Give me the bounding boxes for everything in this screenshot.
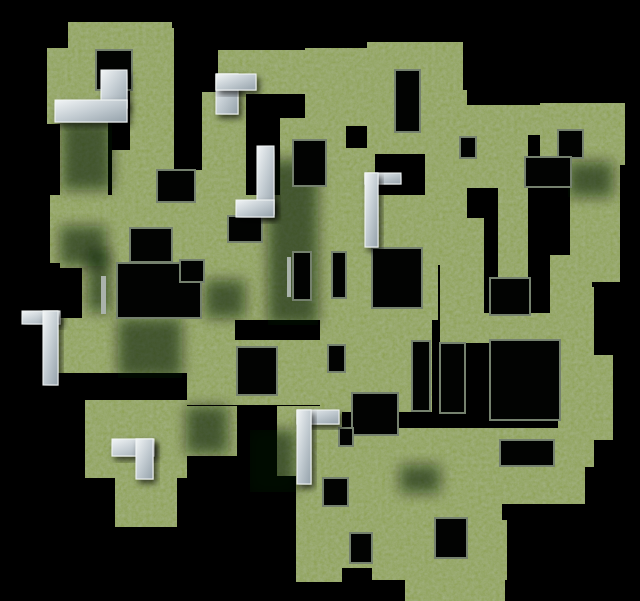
corridor-hole <box>352 393 398 435</box>
wall-edge-sliver <box>287 257 291 297</box>
white-corner-block <box>297 410 311 484</box>
shadow-patch <box>568 162 613 197</box>
corridor-hole <box>395 70 420 132</box>
white-corner-block <box>365 173 378 247</box>
corridor-hole <box>180 260 204 282</box>
grass-wall-segment <box>115 472 177 527</box>
grass-wall-segment <box>440 218 484 320</box>
corridor-hole <box>228 216 262 242</box>
corridor-hole <box>237 347 277 395</box>
corridor-hole <box>332 252 346 298</box>
corridor-hole <box>500 440 554 466</box>
corridor-hole <box>339 428 353 446</box>
shadow-patch <box>205 280 245 318</box>
grass-wall-segment <box>585 355 613 440</box>
corridor-hole <box>293 252 311 300</box>
shadow-patch <box>250 430 296 492</box>
shadow-patch <box>400 465 440 493</box>
white-corner-block <box>216 74 256 90</box>
wall-edge-sliver <box>101 276 106 314</box>
corridor-hole <box>460 137 476 158</box>
corridor-hole <box>157 170 195 202</box>
corridor-hole <box>490 278 530 315</box>
grass-wall-segment <box>460 428 502 601</box>
grass-wall-segment <box>440 313 570 343</box>
maze-scene-svg <box>0 0 640 601</box>
corridor-hole <box>323 478 348 506</box>
corridor-hole <box>412 341 430 411</box>
white-corner-block <box>55 100 127 122</box>
shadow-patch <box>60 226 106 266</box>
maze-render <box>0 0 640 601</box>
shadow-patch <box>118 318 182 378</box>
white-corner-block <box>236 200 274 217</box>
white-corner-block <box>43 311 58 385</box>
corridor-hole <box>130 228 172 262</box>
white-corner-block <box>136 439 153 479</box>
corridor-hole <box>490 340 560 420</box>
corridor-hole <box>372 248 422 308</box>
corridor-hole <box>525 157 571 187</box>
corridor-hole <box>435 518 467 558</box>
corridor-hole <box>558 130 583 158</box>
shadow-patch <box>186 406 228 454</box>
corridor-hole <box>350 533 372 563</box>
corridor-hole <box>328 345 345 372</box>
corridor-hole <box>440 343 465 413</box>
corridor-hole <box>293 140 326 186</box>
shadow-patch <box>62 120 112 190</box>
